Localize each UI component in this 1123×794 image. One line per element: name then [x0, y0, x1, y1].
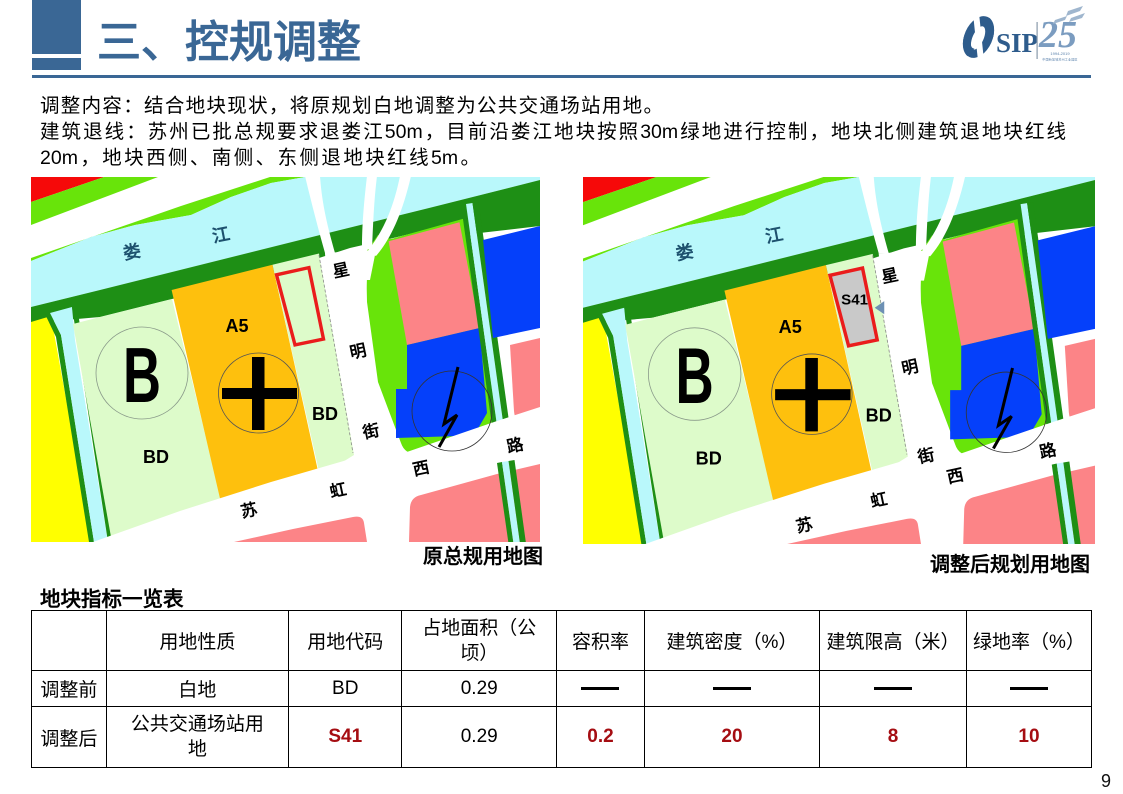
svg-text:S41: S41	[841, 292, 868, 309]
svg-text:SIP: SIP	[996, 28, 1038, 58]
svg-text:BD: BD	[866, 405, 892, 425]
svg-text:B: B	[676, 332, 714, 420]
svg-text:1994-2019: 1994-2019	[1050, 51, 1070, 56]
svg-text:BD: BD	[143, 447, 169, 467]
svg-text:中国新加坡苏州工业园区: 中国新加坡苏州工业园区	[1042, 57, 1077, 62]
svg-text:A5: A5	[779, 317, 802, 337]
svg-text:BD: BD	[696, 449, 722, 469]
svg-text:A5: A5	[225, 316, 248, 336]
svg-text:BD: BD	[312, 404, 338, 424]
svg-text:B: B	[123, 331, 161, 419]
